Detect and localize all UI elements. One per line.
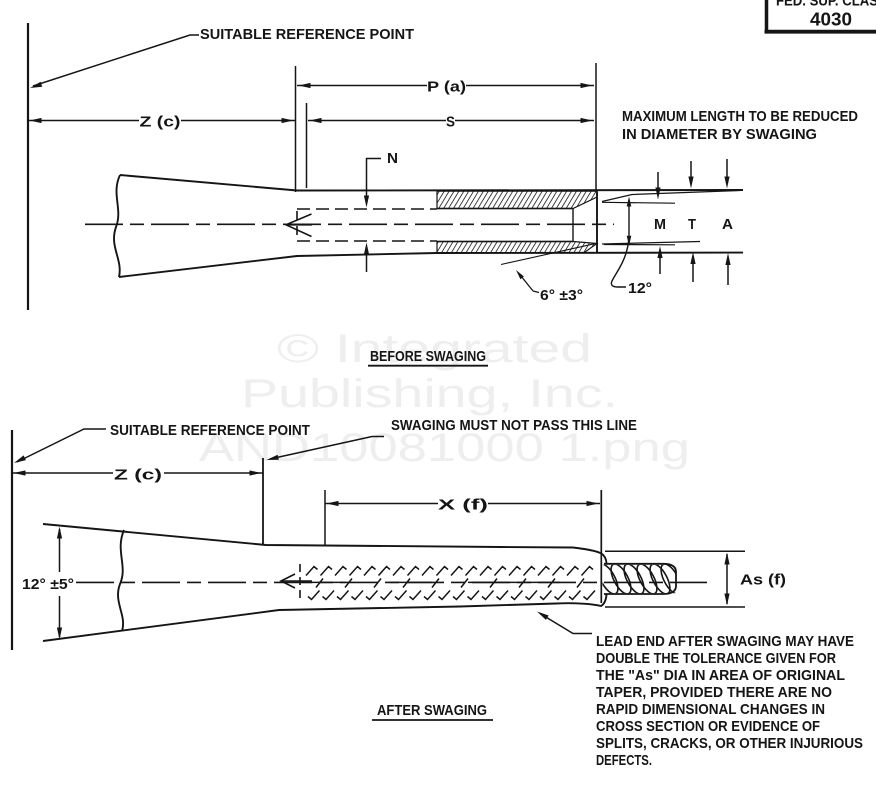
svg-text:4030: 4030	[810, 10, 852, 30]
svg-text:IN DIAMETER BY SWAGING: IN DIAMETER BY SWAGING	[622, 126, 817, 143]
svg-text:X (f): X (f)	[438, 497, 488, 514]
svg-text:S: S	[446, 114, 455, 131]
svg-text:T: T	[688, 216, 696, 233]
svg-text:M: M	[654, 216, 666, 233]
svg-text:AFTER SWAGING: AFTER SWAGING	[377, 702, 487, 719]
svg-text:RAPID DIMENSIONAL CHANGES IN: RAPID DIMENSIONAL CHANGES IN	[596, 701, 825, 718]
svg-text:Publishing, Inc.: Publishing, Inc.	[241, 372, 618, 416]
svg-text:SPLITS, CRACKS, OR OTHER INJUR: SPLITS, CRACKS, OR OTHER INJURIOUS	[596, 735, 863, 752]
svg-text:DOUBLE THE TOLERANCE GIVEN FOR: DOUBLE THE TOLERANCE GIVEN FOR	[596, 650, 836, 667]
svg-text:DEFECTS.: DEFECTS.	[596, 752, 652, 769]
svg-text:N: N	[387, 150, 398, 167]
svg-text:As (f): As (f)	[740, 572, 786, 589]
svg-text:Z (c): Z (c)	[140, 114, 181, 131]
svg-text:6° ±3°: 6° ±3°	[540, 287, 583, 304]
svg-text:MAXIMUM LENGTH TO BE REDUCED: MAXIMUM LENGTH TO BE REDUCED	[622, 108, 858, 125]
svg-text:12° ±5°: 12° ±5°	[22, 576, 74, 593]
svg-text:SUITABLE REFERENCE POINT: SUITABLE REFERENCE POINT	[110, 422, 310, 439]
svg-text:FED. SUP. CLAS: FED. SUP. CLAS	[776, 0, 876, 10]
svg-text:P (a): P (a)	[427, 79, 466, 96]
svg-text:Z (c): Z (c)	[114, 467, 162, 484]
svg-text:SWAGING MUST NOT PASS THIS LIN: SWAGING MUST NOT PASS THIS LINE	[391, 417, 637, 434]
svg-text:12°: 12°	[628, 280, 652, 297]
svg-text:A: A	[722, 216, 733, 233]
svg-text:SUITABLE REFERENCE POINT: SUITABLE REFERENCE POINT	[200, 26, 414, 43]
svg-text:BEFORE SWAGING: BEFORE SWAGING	[370, 348, 486, 365]
svg-text:CROSS SECTION OR EVIDENCE OF: CROSS SECTION OR EVIDENCE OF	[596, 718, 820, 735]
svg-text:THE "As" DIA IN AREA OF ORIGIN: THE "As" DIA IN AREA OF ORIGINAL	[596, 667, 845, 684]
svg-text:LEAD END AFTER SWAGING MAY HAV: LEAD END AFTER SWAGING MAY HAVE	[596, 633, 854, 650]
svg-text:TAPER, PROVIDED THERE ARE NO: TAPER, PROVIDED THERE ARE NO	[596, 684, 832, 701]
